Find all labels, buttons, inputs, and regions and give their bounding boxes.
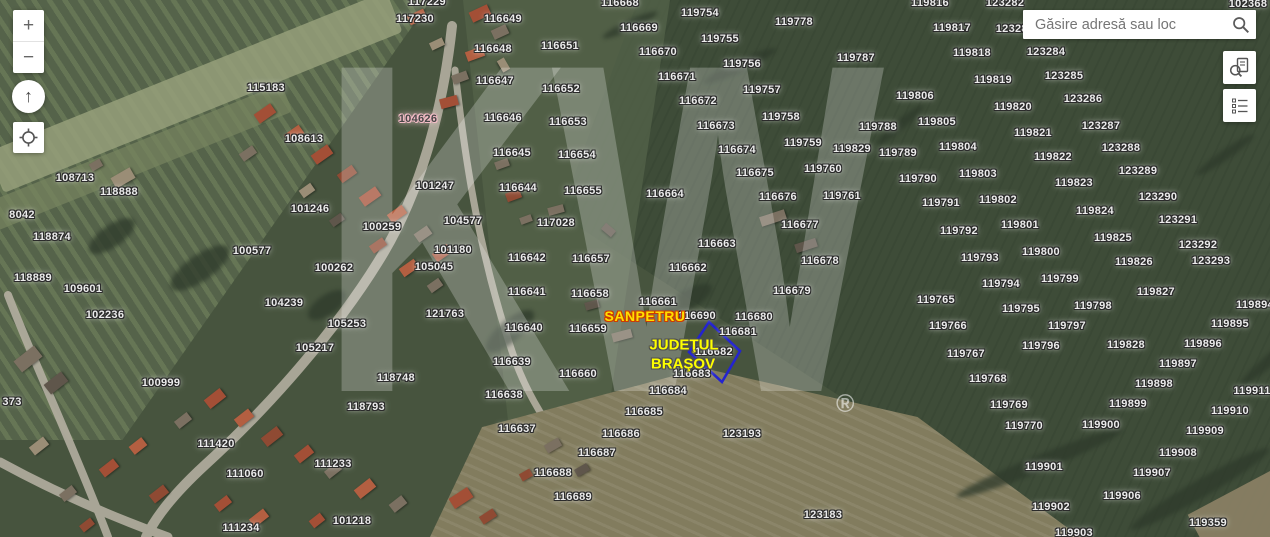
place-label-sanpetru: SANPETRU xyxy=(604,308,685,324)
place-label-braşov: BRAŞOV xyxy=(651,356,715,373)
search-icon xyxy=(1232,16,1250,34)
search-input[interactable] xyxy=(1033,11,1226,38)
parcel-info-button[interactable] xyxy=(1223,51,1256,84)
zoom-out-button[interactable]: − xyxy=(13,42,44,73)
crosshair-icon xyxy=(19,128,38,147)
locate-me-button[interactable] xyxy=(13,122,44,153)
zoom-panel: + − xyxy=(13,10,44,73)
search-button[interactable] xyxy=(1226,10,1256,39)
map-viewport[interactable]: KW ® 11722911723011518310462610861310871… xyxy=(0,0,1270,537)
compass-north-button[interactable]: ↑ xyxy=(12,80,45,113)
place-label-judeţul: JUDEŢUL xyxy=(649,337,718,354)
place-labels-layer: SANPETRUJUDEŢULBRAŞOV xyxy=(0,0,1270,537)
search-box xyxy=(1023,10,1256,39)
zoom-in-button[interactable]: + xyxy=(13,10,44,41)
layer-list-button[interactable] xyxy=(1223,89,1256,122)
layer-list-icon xyxy=(1230,96,1250,116)
parcel-document-search-icon xyxy=(1229,57,1250,78)
